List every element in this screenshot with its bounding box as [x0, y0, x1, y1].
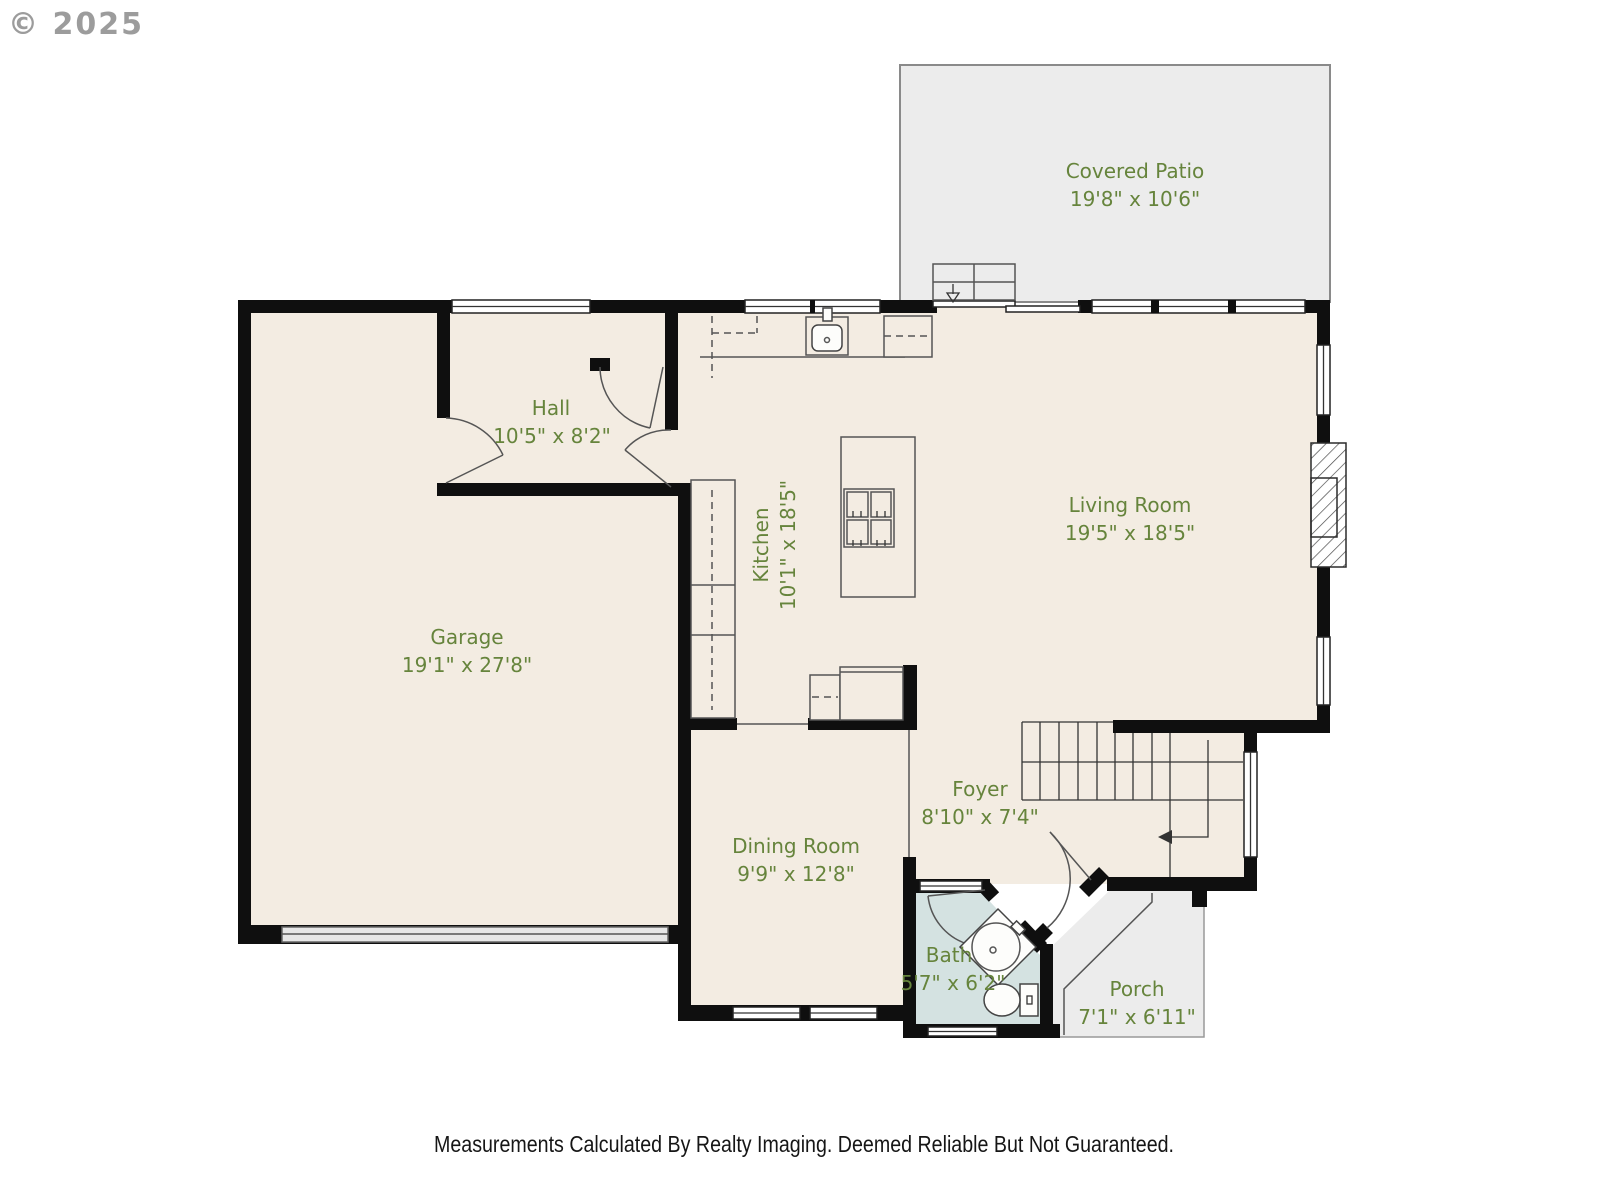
room-dims-living-room: 19'5" x 18'5" — [1065, 521, 1195, 545]
floor-plan-page: Covered Patio 19'8" x 10'6" Hall 10'5" x… — [0, 0, 1600, 1200]
room-label-bath: Bath — [926, 943, 973, 967]
kitchen-island — [841, 437, 915, 597]
refrigerator — [884, 316, 932, 357]
room-dims-bath: 5'7" x 6'2" — [901, 971, 1006, 995]
floor-plan-svg: Covered Patio 19'8" x 10'6" Hall 10'5" x… — [0, 0, 1600, 1200]
kitchen-windows — [745, 300, 880, 313]
copyright-watermark: © 2025 — [8, 7, 144, 42]
kitchen-left-counter — [691, 480, 735, 718]
hall-window — [452, 300, 590, 313]
room-label-foyer: Foyer — [952, 777, 1008, 801]
fireplace — [1311, 443, 1346, 567]
room-label-living-room: Living Room — [1069, 493, 1192, 517]
room-dims-porch: 7'1" x 6'11" — [1078, 1005, 1196, 1029]
room-dims-garage: 19'1" x 27'8" — [402, 653, 532, 677]
room-label-kitchen: Kitchen — [749, 507, 773, 582]
room-label-dining-room: Dining Room — [732, 834, 860, 858]
room-dims-covered-patio: 19'8" x 10'6" — [1070, 187, 1200, 211]
room-label-hall: Hall — [532, 396, 570, 420]
room-dims-foyer: 8'10" x 7'4" — [921, 805, 1039, 829]
room-label-porch: Porch — [1109, 977, 1164, 1001]
garage-floor — [244, 306, 684, 938]
living-room-top-windows — [1092, 300, 1305, 313]
patio-step — [933, 264, 1015, 302]
room-dims-dining-room: 9'9" x 12'8" — [737, 862, 855, 886]
room-dims-kitchen: 10'1" x 18'5" — [776, 480, 800, 610]
room-dims-hall: 10'5" x 8'2" — [493, 424, 611, 448]
pantry-cabinets — [810, 667, 903, 720]
garage-door — [282, 927, 668, 942]
room-label-covered-patio: Covered Patio — [1066, 159, 1205, 183]
room-label-garage: Garage — [430, 625, 503, 649]
disclaimer-text: Measurements Calculated By Realty Imagin… — [434, 1131, 1174, 1157]
stair-side-window — [1244, 752, 1257, 857]
